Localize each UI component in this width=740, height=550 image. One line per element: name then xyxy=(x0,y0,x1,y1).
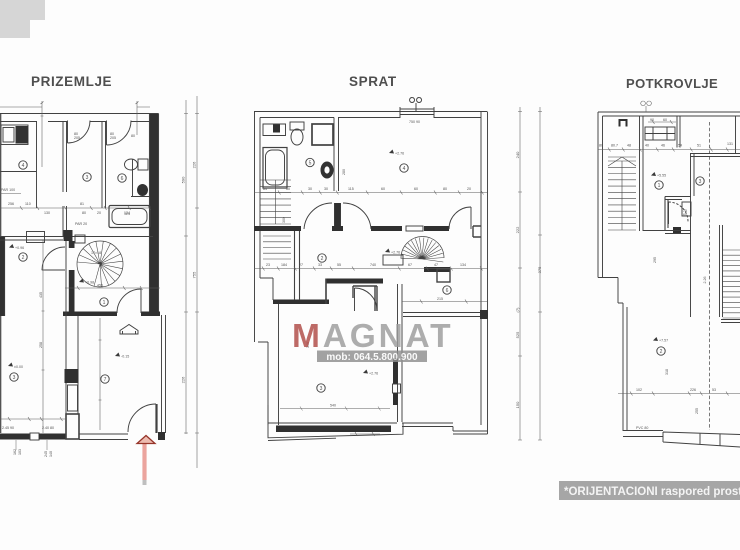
svg-text:60: 60 xyxy=(414,187,418,191)
svg-text:60: 60 xyxy=(663,118,667,122)
svg-text:80: 80 xyxy=(131,134,135,138)
svg-text:150: 150 xyxy=(515,401,520,408)
svg-text:525: 525 xyxy=(515,331,520,338)
svg-text:PAR 100: PAR 100 xyxy=(1,188,15,192)
svg-text:6: 6 xyxy=(121,176,124,182)
svg-text:240: 240 xyxy=(515,151,520,158)
svg-text:300: 300 xyxy=(282,217,286,223)
svg-text:-0.15: -0.15 xyxy=(121,355,129,359)
svg-text:2: 2 xyxy=(321,256,324,262)
svg-text:60: 60 xyxy=(286,187,290,191)
svg-text:750 90: 750 90 xyxy=(409,120,420,124)
svg-text:540: 540 xyxy=(330,404,336,408)
svg-text:(7): (7) xyxy=(515,307,520,313)
svg-text:255: 255 xyxy=(695,408,699,414)
svg-text:±0.00: ±0.00 xyxy=(14,365,23,369)
svg-text:3: 3 xyxy=(86,175,89,181)
svg-text:226: 226 xyxy=(181,376,186,383)
svg-text:PRIZEMLJE: PRIZEMLJE xyxy=(31,74,112,89)
svg-text:590: 590 xyxy=(181,176,186,183)
svg-text:2.40 80: 2.40 80 xyxy=(42,426,54,430)
svg-text:162: 162 xyxy=(13,449,17,455)
svg-text:80: 80 xyxy=(82,211,86,215)
svg-text:53: 53 xyxy=(712,388,716,392)
svg-text:60: 60 xyxy=(683,213,687,217)
svg-text:+0.96: +0.96 xyxy=(15,246,24,250)
svg-text:124: 124 xyxy=(124,211,130,215)
svg-text:81: 81 xyxy=(80,202,84,206)
svg-text:4: 4 xyxy=(22,163,25,169)
svg-text:256: 256 xyxy=(8,202,14,206)
svg-text:435: 435 xyxy=(39,292,43,298)
svg-text:30: 30 xyxy=(324,187,328,191)
svg-text:2: 2 xyxy=(22,255,25,261)
svg-text:7: 7 xyxy=(104,377,107,383)
svg-text:226: 226 xyxy=(690,388,696,392)
svg-text:60: 60 xyxy=(381,187,385,191)
svg-text:1: 1 xyxy=(103,300,106,306)
svg-text:mob: 064.5.800.900: mob: 064.5.800.900 xyxy=(326,352,418,363)
svg-text:PVC 80: PVC 80 xyxy=(636,426,648,430)
svg-text:3: 3 xyxy=(699,179,702,185)
svg-text:55: 55 xyxy=(337,263,341,267)
svg-text:1: 1 xyxy=(658,183,661,189)
svg-text:80: 80 xyxy=(443,187,447,191)
svg-text:54: 54 xyxy=(678,144,682,148)
svg-text:90: 90 xyxy=(650,118,654,122)
svg-text:20: 20 xyxy=(97,211,101,215)
svg-text:3: 3 xyxy=(13,375,16,381)
svg-text:+5.55: +5.55 xyxy=(657,174,666,178)
svg-text:46: 46 xyxy=(661,144,665,148)
svg-text:5: 5 xyxy=(309,161,312,167)
svg-text:PAR 20: PAR 20 xyxy=(75,222,87,226)
svg-text:245: 245 xyxy=(44,451,48,457)
svg-text:4: 4 xyxy=(403,166,406,172)
svg-text:3: 3 xyxy=(320,386,323,392)
svg-text:33: 33 xyxy=(318,263,322,267)
svg-text:2: 2 xyxy=(660,349,663,355)
svg-text:20: 20 xyxy=(467,187,471,191)
svg-text:226: 226 xyxy=(192,161,197,168)
svg-text:SPRAT: SPRAT xyxy=(349,74,397,89)
svg-text:140: 140 xyxy=(49,451,53,457)
svg-text:+2.76: +2.76 xyxy=(395,152,404,156)
svg-text:295: 295 xyxy=(653,257,657,263)
svg-text:215: 215 xyxy=(437,297,443,301)
svg-text:318: 318 xyxy=(665,369,669,375)
svg-text:51: 51 xyxy=(697,144,701,148)
svg-text:80.7: 80.7 xyxy=(611,144,618,148)
svg-text:80: 80 xyxy=(599,144,603,148)
svg-text:258: 258 xyxy=(39,342,43,348)
svg-text:184: 184 xyxy=(281,263,287,267)
svg-text:755: 755 xyxy=(192,271,197,278)
svg-text:280: 280 xyxy=(342,169,346,175)
svg-text:102: 102 xyxy=(636,388,642,392)
svg-text:MAGNAT: MAGNAT xyxy=(292,318,453,355)
svg-text:+2.76: +2.76 xyxy=(369,372,378,376)
svg-text:+0.98: +0.98 xyxy=(85,281,94,285)
svg-text:23: 23 xyxy=(266,263,270,267)
svg-text:+7.57: +7.57 xyxy=(659,339,668,343)
svg-text:115: 115 xyxy=(348,187,354,191)
svg-text:6: 6 xyxy=(446,288,449,294)
svg-text:+2.76: +2.76 xyxy=(391,251,400,255)
svg-text:103: 103 xyxy=(18,449,22,455)
svg-text:740: 740 xyxy=(370,263,376,267)
svg-text:POTKROVLJE: POTKROVLJE xyxy=(626,76,718,91)
svg-text:67: 67 xyxy=(408,263,412,267)
svg-text:131: 131 xyxy=(727,142,733,146)
svg-text:47: 47 xyxy=(434,263,438,267)
svg-text:110: 110 xyxy=(25,202,31,206)
svg-text:2.26: 2.26 xyxy=(703,277,707,284)
svg-text:48: 48 xyxy=(627,144,631,148)
svg-text:30: 30 xyxy=(308,187,312,191)
svg-text:222: 222 xyxy=(515,226,520,233)
svg-text:205: 205 xyxy=(74,136,80,140)
svg-text:130: 130 xyxy=(44,211,50,215)
svg-text:134: 134 xyxy=(460,263,466,267)
svg-text:27: 27 xyxy=(299,263,303,267)
svg-text:40: 40 xyxy=(645,144,649,148)
svg-text:17×18: 17×18 xyxy=(91,251,101,255)
svg-text:2.45 90: 2.45 90 xyxy=(2,426,14,430)
svg-text:375: 375 xyxy=(537,266,542,273)
svg-text:84: 84 xyxy=(263,187,267,191)
svg-text:*ORIJENTACIONI raspored prost: *ORIJENTACIONI raspored prost xyxy=(564,486,740,498)
svg-text:455: 455 xyxy=(97,284,103,288)
svg-text:205: 205 xyxy=(110,136,116,140)
